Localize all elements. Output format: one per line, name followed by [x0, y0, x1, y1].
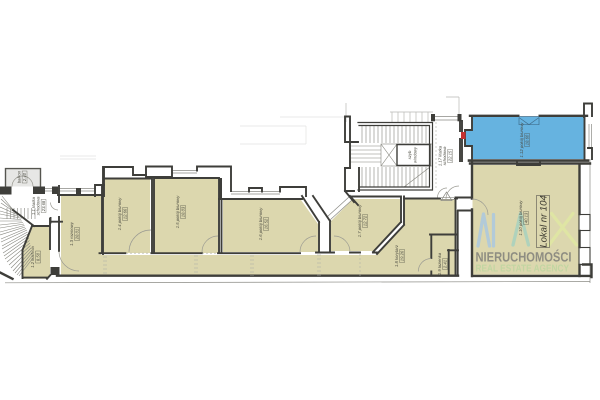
svg-text:1.12 pokój biurowy: 1.12 pokój biurowy	[519, 122, 524, 158]
svg-text:2.41: 2.41	[442, 260, 447, 269]
svg-text:12.66: 12.66	[122, 208, 127, 219]
svg-text:1.2 kuchnia: 1.2 kuchnia	[30, 246, 35, 268]
svg-text:40.13: 40.13	[523, 212, 528, 223]
svg-text:23.68: 23.68	[41, 200, 46, 212]
svg-text:8.50: 8.50	[35, 252, 40, 261]
svg-text:1.5 pokój biurowy: 1.5 pokój biurowy	[175, 195, 180, 228]
svg-text:18.03: 18.03	[180, 206, 185, 217]
svg-text:28.01: 28.01	[74, 229, 79, 240]
svg-text:1.9 łazienka: 1.9 łazienka	[437, 252, 442, 275]
svg-text:2.40: 2.40	[22, 172, 27, 182]
svg-text:12.72: 12.72	[362, 215, 367, 226]
svg-text:16.52: 16.52	[263, 218, 268, 229]
svg-text:windowy: windowy	[412, 146, 417, 163]
svg-text:22.15: 22.15	[447, 150, 452, 162]
svg-text:NIERUCHOMOŚCI: NIERUCHOMOŚCI	[476, 250, 572, 265]
svg-text:Lokal nr 104: Lokal nr 104	[539, 195, 550, 247]
svg-text:1.4 pokój biurowy: 1.4 pokój biurowy	[117, 197, 122, 230]
svg-text:balkon: balkon	[17, 170, 22, 183]
svg-text:1.3 rozmowy: 1.3 rozmowy	[69, 221, 74, 246]
svg-text:szyb: szyb	[407, 150, 412, 159]
svg-text:19.26: 19.26	[399, 250, 404, 261]
svg-text:1.6 pokój biurowy: 1.6 pokój biurowy	[258, 207, 263, 240]
svg-text:1.7 pokój biurowy: 1.7 pokój biurowy	[357, 204, 362, 237]
svg-text:18.60: 18.60	[524, 134, 529, 145]
svg-text:1.8 korytarz: 1.8 korytarz	[394, 244, 399, 267]
svg-text:1.10 pokój biurowy: 1.10 pokój biurowy	[518, 200, 523, 236]
svg-text:REAL ESTATE AGENCY: REAL ESTATE AGENCY	[476, 264, 570, 275]
